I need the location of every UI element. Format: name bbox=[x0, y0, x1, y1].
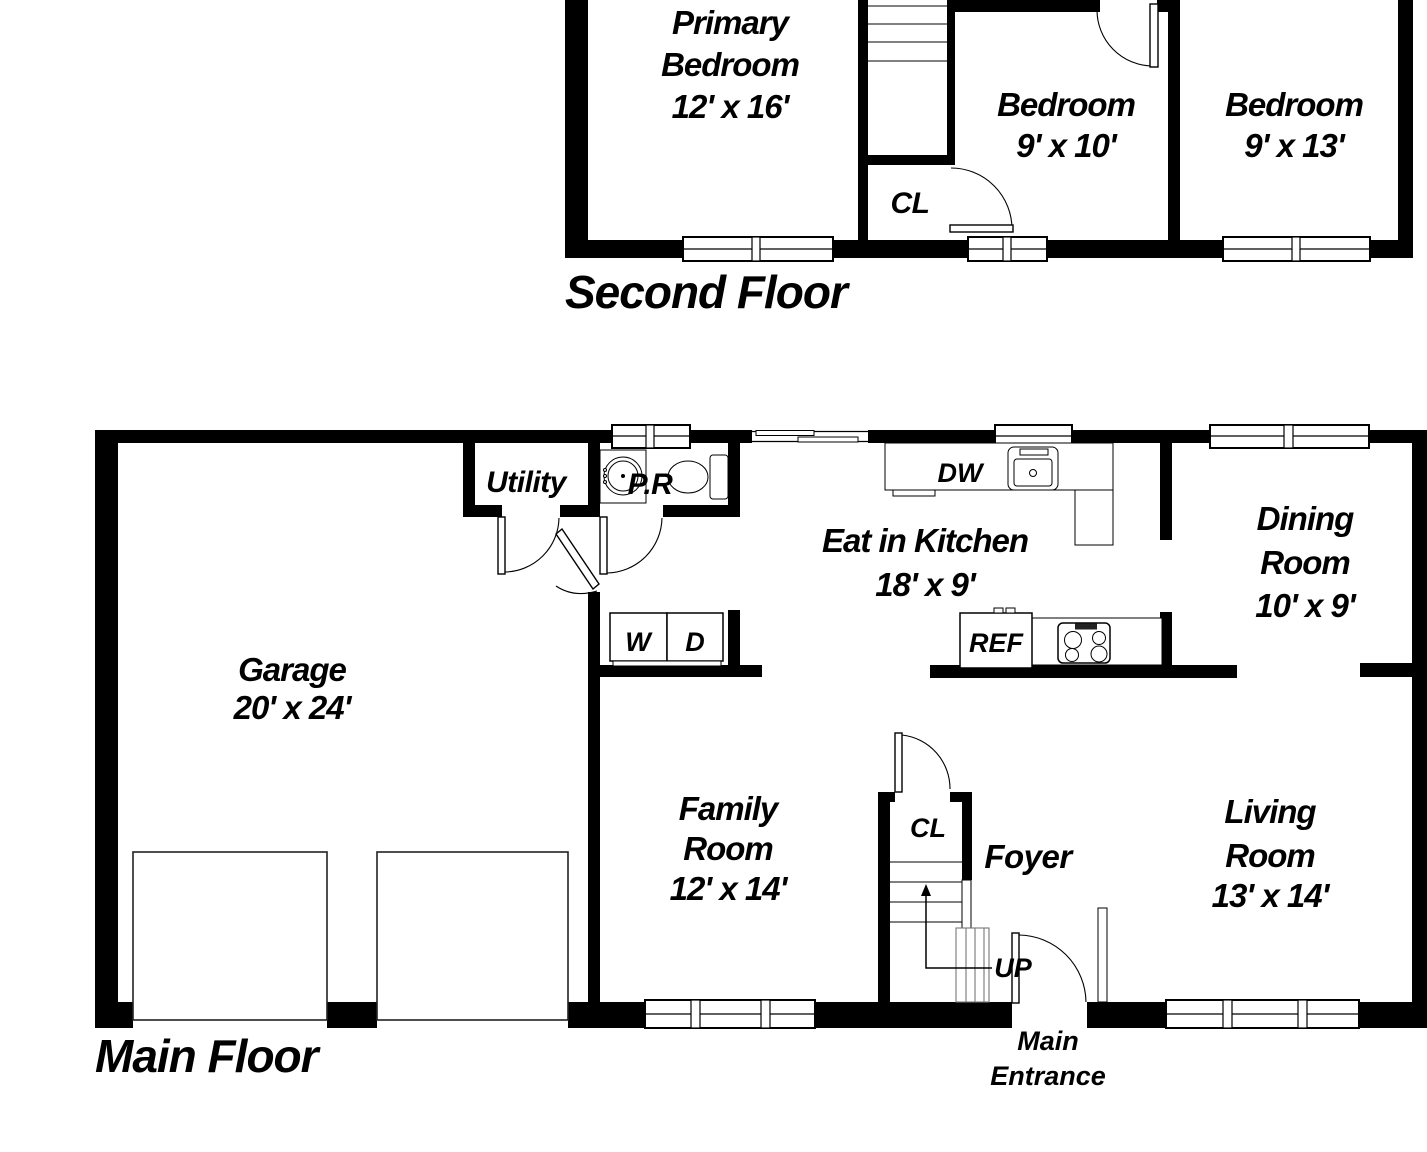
second-floor-plan: Primary Bedroom 12' x 16' Bedroom 9' x 1… bbox=[565, 0, 1413, 318]
bedroom-9x13-dims: 9' x 13' bbox=[1244, 127, 1346, 164]
living-room-dims: 13' x 14' bbox=[1212, 877, 1331, 914]
foyer-label: Foyer bbox=[984, 838, 1074, 875]
dining-label-2: Room bbox=[1260, 544, 1350, 581]
washer-label: W bbox=[625, 627, 653, 657]
floor-plan-image: Primary Bedroom 12' x 16' Bedroom 9' x 1… bbox=[0, 0, 1427, 1152]
wall-stair-left bbox=[858, 0, 868, 240]
refrigerator-label: REF bbox=[969, 628, 1025, 658]
garage-door-opening-1 bbox=[133, 1002, 327, 1028]
kitchen-dims: 18' x 9' bbox=[875, 566, 977, 603]
garage-dims: 20' x 24' bbox=[233, 689, 353, 726]
wall-stair-block-left bbox=[878, 792, 890, 1002]
powder-room-label: P.R bbox=[628, 468, 673, 501]
garage-entry-door-arc bbox=[556, 586, 597, 594]
up-label: UP bbox=[994, 953, 1032, 983]
main-closet-label: CL bbox=[910, 813, 946, 843]
foyer-closet-door-arc bbox=[902, 735, 950, 789]
primary-bedroom-label-2: Bedroom bbox=[661, 46, 799, 83]
window-powder-room bbox=[612, 425, 690, 448]
closet-door-arc bbox=[951, 168, 1012, 229]
window-dining bbox=[1210, 425, 1369, 448]
primary-bedroom-dims: 12' x 16' bbox=[672, 88, 791, 125]
wall-right bbox=[1398, 0, 1413, 240]
wall-pr-right bbox=[728, 443, 740, 517]
family-room-label-1: Family bbox=[679, 790, 780, 827]
wall-laundry-bottom bbox=[588, 665, 762, 677]
wall-closet-divider bbox=[858, 155, 955, 165]
family-room-dims: 12' x 14' bbox=[670, 870, 789, 907]
family-room-label-2: Room bbox=[683, 830, 773, 867]
dishwasher-front bbox=[893, 490, 935, 496]
kitchen-label: Eat in Kitchen bbox=[822, 522, 1028, 559]
wall-utility-pr-divider bbox=[588, 443, 600, 517]
wall-bedroom-top-b bbox=[1157, 0, 1180, 12]
foyer-closet-door-leaf bbox=[895, 733, 902, 792]
main-floor-plan: Garage 20' x 24' Utility P.R DW Eat in K… bbox=[95, 425, 1427, 1091]
pr-toilet bbox=[668, 455, 728, 499]
main-floor-title: Main Floor bbox=[95, 1030, 321, 1082]
wall-stair-right bbox=[947, 0, 955, 158]
bedroom-9x10-dims: 9' x 10' bbox=[1016, 127, 1118, 164]
wall-bedroom-divider bbox=[1168, 0, 1180, 240]
bedroom-door-arc bbox=[1097, 10, 1152, 66]
utility-door-arc bbox=[505, 518, 559, 572]
wall-dining-bottom-right bbox=[1360, 663, 1412, 677]
garage-entry-door-leaf bbox=[556, 529, 599, 589]
utility-label: Utility bbox=[486, 466, 568, 499]
second-floor-title: Second Floor bbox=[565, 266, 850, 318]
wall-right bbox=[1412, 430, 1427, 1028]
wall-left bbox=[95, 430, 118, 1028]
closet-door-leaf bbox=[950, 225, 1013, 232]
wall-closet-top-a bbox=[878, 792, 895, 802]
sliding-door bbox=[752, 430, 868, 443]
window-family-room bbox=[645, 1000, 815, 1028]
wall-left bbox=[565, 0, 588, 258]
window-bedroom-9x13 bbox=[1223, 237, 1370, 261]
stove bbox=[1058, 623, 1110, 663]
entrance-opening bbox=[1012, 1002, 1087, 1028]
pr-door-arc bbox=[607, 518, 662, 573]
bedroom-9x13-label: Bedroom bbox=[1225, 86, 1363, 123]
floor-plan-drawing: Primary Bedroom 12' x 16' Bedroom 9' x 1… bbox=[0, 0, 1427, 1152]
main-entrance-label-2: Entrance bbox=[990, 1061, 1106, 1091]
dryer-label: D bbox=[685, 627, 705, 657]
kitchen-counter-top bbox=[885, 443, 1113, 490]
entry-partition-wall bbox=[1098, 908, 1107, 1002]
living-room-label-2: Room bbox=[1225, 837, 1315, 874]
dishwasher-label: DW bbox=[938, 458, 985, 488]
garage-door-2 bbox=[377, 852, 568, 1020]
wall-stair-block-right bbox=[962, 792, 972, 880]
window-primary-bedroom bbox=[683, 237, 833, 261]
stairs-main bbox=[890, 862, 989, 1002]
stairs-treads bbox=[868, 6, 947, 61]
dining-dims: 10' x 9' bbox=[1255, 587, 1357, 624]
wall-laundry-stub bbox=[728, 610, 740, 667]
window-bedroom-9x10 bbox=[968, 237, 1047, 261]
main-entrance-label-1: Main bbox=[1017, 1026, 1079, 1056]
living-room-label-1: Living bbox=[1224, 793, 1316, 830]
bedroom-door-leaf bbox=[1150, 4, 1158, 67]
closet-label: CL bbox=[891, 187, 930, 220]
wall-garage-boundary bbox=[588, 592, 600, 1002]
laundry-base bbox=[613, 661, 721, 666]
kitchen-counter-return bbox=[1075, 490, 1113, 545]
kitchen-sink bbox=[1008, 447, 1058, 490]
wall-kitchen-dining bbox=[1160, 443, 1172, 540]
primary-bedroom-label-1: Primary bbox=[672, 4, 791, 41]
garage-door-opening-2 bbox=[377, 1002, 568, 1028]
dining-label-1: Dining bbox=[1257, 500, 1354, 537]
wall-utility-bottom-a bbox=[463, 505, 502, 517]
bedroom-9x10-label: Bedroom bbox=[997, 86, 1135, 123]
garage-label: Garage bbox=[238, 651, 346, 688]
utility-door-leaf bbox=[498, 517, 505, 574]
garage-door-1 bbox=[133, 852, 327, 1020]
wall-bedroom-top-a bbox=[947, 0, 1100, 12]
window-living-room bbox=[1166, 1000, 1359, 1028]
pr-door-leaf bbox=[600, 517, 607, 574]
